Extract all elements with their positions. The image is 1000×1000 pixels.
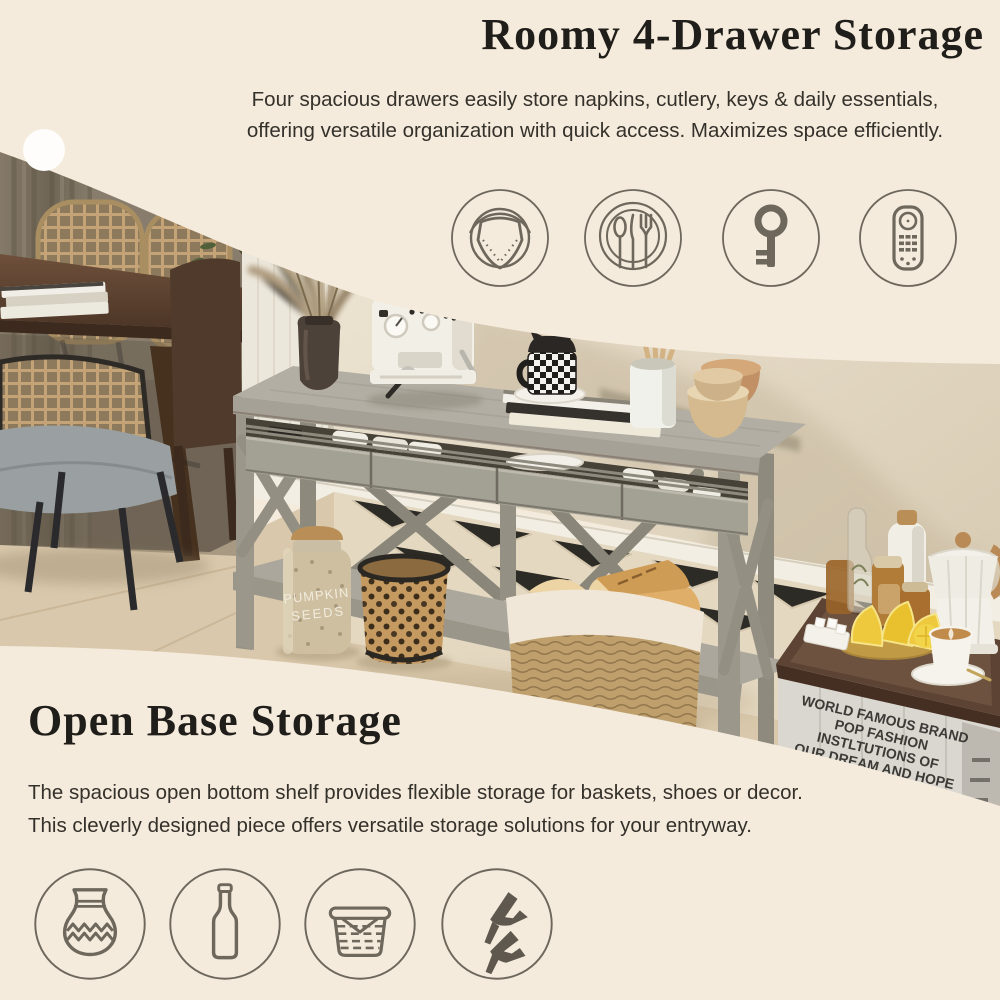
books-stack <box>0 282 109 320</box>
basket-icon <box>303 867 417 981</box>
white-circle-accent <box>23 129 65 171</box>
rattan-basket <box>356 556 452 671</box>
remote-control-icon <box>858 188 958 288</box>
high-heels-icon <box>440 867 554 981</box>
dark-chair <box>170 258 242 450</box>
top-section-title: Roomy 4-Drawer Storage <box>481 12 984 58</box>
bottle-icon <box>168 867 282 981</box>
bottom-description-line2: This cleverly designed piece offers vers… <box>28 809 928 842</box>
napkin-plate-icon <box>450 188 550 288</box>
bottom-section-title: Open Base Storage <box>28 698 402 744</box>
bottom-section-description: The spacious open bottom shelf provides … <box>28 776 928 842</box>
checkered-mug <box>528 352 576 394</box>
bottom-description-line1: The spacious open bottom shelf provides … <box>28 776 928 809</box>
top-description-line2: offering versatile organization with qui… <box>190 115 1000 146</box>
group-head <box>398 352 442 368</box>
product-infographic: PUMPKIN SEEDS <box>0 0 1000 1000</box>
cutlery-plate-icon <box>583 188 683 288</box>
product-photo: PUMPKIN SEEDS <box>0 0 1000 1000</box>
key-icon <box>721 188 821 288</box>
top-description-line1: Four spacious drawers easily store napki… <box>190 84 1000 115</box>
vase-icon <box>33 867 147 981</box>
top-section-description: Four spacious drawers easily store napki… <box>190 84 1000 146</box>
